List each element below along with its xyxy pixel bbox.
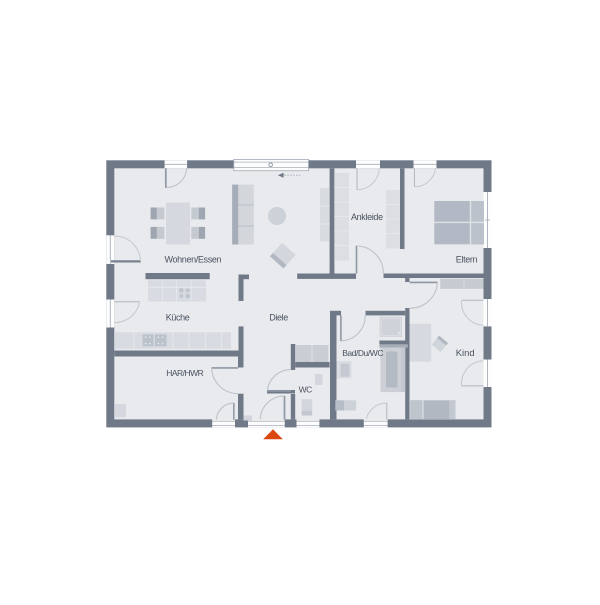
svg-text:Ankleide: Ankleide bbox=[351, 212, 383, 222]
svg-text:Diele: Diele bbox=[269, 313, 288, 323]
svg-text:Wohnen/Essen: Wohnen/Essen bbox=[165, 254, 222, 264]
svg-text:Kind: Kind bbox=[456, 347, 475, 358]
svg-text:HAR/HWR: HAR/HWR bbox=[166, 368, 203, 378]
svg-text:Eltern: Eltern bbox=[456, 255, 478, 265]
svg-text:Küche: Küche bbox=[166, 313, 190, 323]
svg-text:Bad/Du/WC: Bad/Du/WC bbox=[342, 348, 383, 358]
svg-text:WC: WC bbox=[299, 385, 313, 395]
